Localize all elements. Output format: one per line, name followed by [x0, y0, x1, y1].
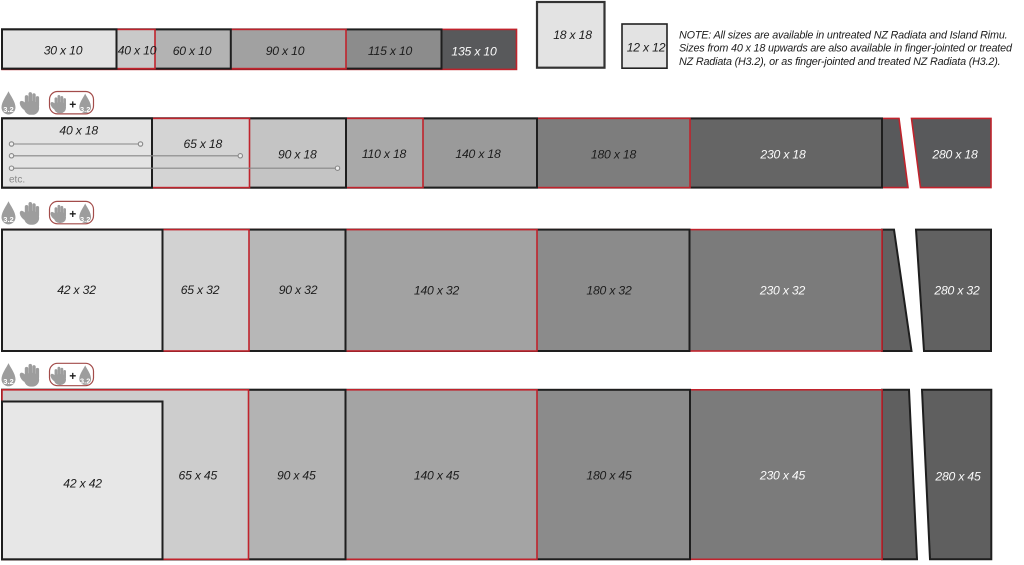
svg-text:180 x 18: 180 x 18 — [591, 148, 637, 162]
svg-text:90 x 32: 90 x 32 — [279, 283, 318, 297]
svg-text:280 x 32: 280 x 32 — [933, 284, 980, 298]
svg-text:230 x 32: 230 x 32 — [759, 284, 806, 298]
svg-text:65 x 45: 65 x 45 — [179, 469, 218, 483]
svg-text:110 x 18: 110 x 18 — [362, 147, 407, 161]
svg-text:42 x 42: 42 x 42 — [63, 476, 102, 490]
svg-text:12 x 12: 12 x 12 — [627, 40, 666, 54]
svg-text:65 x 32: 65 x 32 — [181, 283, 220, 297]
svg-text:140 x 32: 140 x 32 — [414, 284, 460, 298]
svg-text:NOTE: All sizes are available: NOTE: All sizes are available in untreat… — [679, 30, 1013, 68]
svg-text:140 x 18: 140 x 18 — [455, 147, 501, 161]
svg-text:90 x 10: 90 x 10 — [266, 44, 305, 58]
svg-text:65 x 18: 65 x 18 — [184, 137, 223, 151]
svg-text:42 x 32: 42 x 32 — [57, 283, 96, 297]
svg-text:230 x 18: 230 x 18 — [759, 148, 806, 162]
svg-text:280 x 45: 280 x 45 — [934, 469, 981, 483]
svg-text:40 x 10: 40 x 10 — [118, 44, 157, 58]
svg-text:230 x 45: 230 x 45 — [759, 469, 806, 483]
svg-text:135 x 10: 135 x 10 — [451, 44, 497, 58]
svg-text:60 x 10: 60 x 10 — [173, 44, 212, 58]
svg-text:180 x 32: 180 x 32 — [586, 284, 632, 298]
svg-text:140 x 45: 140 x 45 — [414, 469, 460, 483]
svg-text:90 x 18: 90 x 18 — [278, 147, 317, 161]
svg-text:40 x 18: 40 x 18 — [59, 124, 98, 138]
svg-text:280 x 18: 280 x 18 — [931, 148, 978, 162]
svg-text:18 x 18: 18 x 18 — [553, 28, 592, 42]
svg-text:180 x 45: 180 x 45 — [586, 469, 632, 483]
svg-text:115 x 10: 115 x 10 — [368, 44, 413, 58]
svg-text:etc.: etc. — [9, 175, 25, 186]
svg-text:30 x 10: 30 x 10 — [44, 44, 83, 58]
svg-text:90 x 45: 90 x 45 — [277, 469, 316, 483]
